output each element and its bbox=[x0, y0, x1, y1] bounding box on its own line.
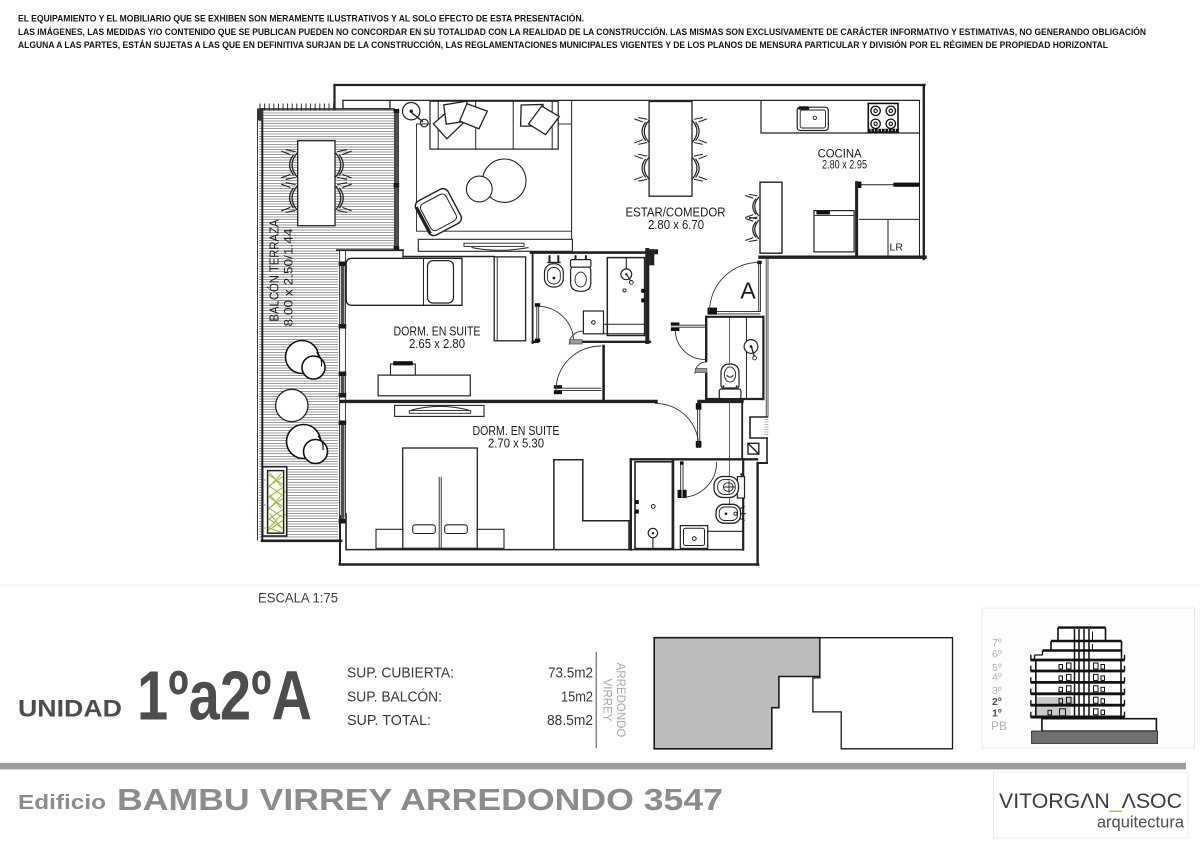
svg-text:Edificio: Edificio bbox=[18, 791, 106, 814]
svg-text:1ºa2ºA: 1ºa2ºA bbox=[137, 657, 312, 735]
svg-text:BAMBU VIRREY ARREDONDO 3547: BAMBU VIRREY ARREDONDO 3547 bbox=[117, 782, 723, 817]
svg-text:4º: 4º bbox=[992, 671, 1002, 683]
svg-text:SUP. TOTAL:: SUP. TOTAL: bbox=[347, 712, 431, 729]
svg-text:1º: 1º bbox=[992, 708, 1002, 720]
svg-text:BALCÓN TERRAZA: BALCÓN TERRAZA bbox=[267, 219, 282, 321]
svg-text:UNIDAD: UNIDAD bbox=[18, 696, 122, 723]
svg-text:VITORGΛN_ΛSOC: VITORGΛN_ΛSOC bbox=[999, 789, 1182, 813]
svg-text:PB: PB bbox=[991, 719, 1007, 733]
svg-text:LAS IMÁGENES, LAS MEDIDAS Y/O: LAS IMÁGENES, LAS MEDIDAS Y/O CONTENIDO … bbox=[18, 26, 1146, 37]
svg-text:2.80 x 2.95: 2.80 x 2.95 bbox=[822, 158, 867, 172]
svg-text:15m2: 15m2 bbox=[561, 689, 593, 706]
svg-text:EL EQUIPAMIENTO Y EL MOBILIARI: EL EQUIPAMIENTO Y EL MOBILIARIO QUE SE E… bbox=[18, 13, 584, 24]
svg-text:ALGUNA A LAS PARTES, ESTÁN SUJ: ALGUNA A LAS PARTES, ESTÁN SUJETAS A LAS… bbox=[18, 39, 1108, 50]
svg-text:2º: 2º bbox=[992, 696, 1002, 708]
svg-text:SUP. BALCÓN:: SUP. BALCÓN: bbox=[347, 689, 442, 706]
svg-text:73.5m2: 73.5m2 bbox=[548, 665, 593, 682]
svg-text:8.00 x 2.50/1.44: 8.00 x 2.50/1.44 bbox=[282, 228, 296, 326]
svg-text:A: A bbox=[740, 278, 756, 304]
svg-text:2.70 x 5.30: 2.70 x 5.30 bbox=[488, 437, 544, 451]
svg-text:3º: 3º bbox=[992, 685, 1002, 697]
svg-text:2.65 x 2.80: 2.65 x 2.80 bbox=[409, 337, 465, 351]
svg-text:88.5m2: 88.5m2 bbox=[547, 712, 593, 729]
svg-text:VIRREY: VIRREY bbox=[601, 679, 613, 722]
svg-text:LR: LR bbox=[890, 242, 904, 254]
svg-text:SUP. CUBIERTA:: SUP. CUBIERTA: bbox=[347, 665, 454, 682]
svg-text:ESCALA 1:75: ESCALA 1:75 bbox=[258, 591, 338, 606]
svg-text:ARREDONDO: ARREDONDO bbox=[614, 663, 626, 738]
svg-text:7º: 7º bbox=[992, 637, 1002, 649]
svg-text:2.80 x 6.70: 2.80 x 6.70 bbox=[648, 218, 704, 232]
svg-text:arquitectura: arquitectura bbox=[1097, 814, 1185, 832]
svg-text:6º: 6º bbox=[992, 649, 1002, 661]
